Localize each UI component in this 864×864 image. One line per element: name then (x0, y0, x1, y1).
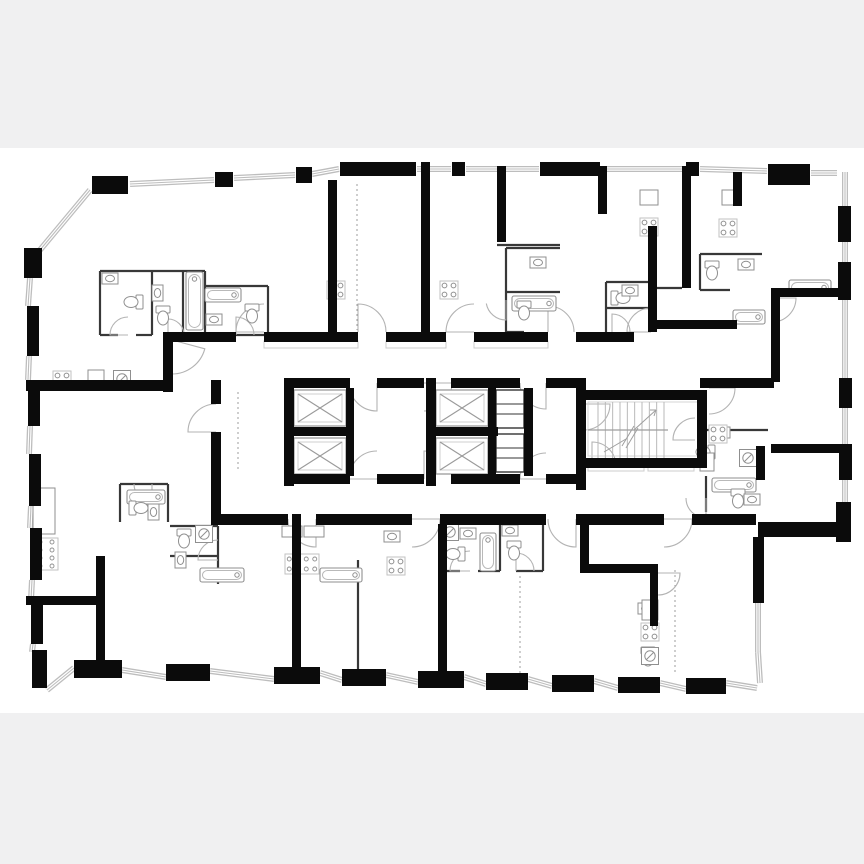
wall-segment (340, 162, 416, 176)
toilet-bowl (124, 297, 138, 308)
elevator-jamb (346, 396, 354, 401)
wall-segment (377, 474, 424, 484)
wall-segment (26, 380, 172, 391)
wall-segment (328, 180, 337, 332)
wall-segment (838, 206, 851, 242)
wall-segment (440, 514, 546, 525)
washer-icon (642, 648, 659, 665)
wall-segment (768, 164, 810, 185)
toilet-icon (517, 301, 531, 320)
sink-icon (206, 314, 222, 325)
toilet-bowl (707, 266, 718, 280)
wall-segment (486, 673, 528, 690)
sink-icon (148, 504, 159, 520)
wall-segment (576, 514, 664, 525)
wall-segment (421, 162, 430, 342)
wall-segment (211, 474, 221, 514)
bathtub-icon (733, 310, 765, 324)
stove-icon (440, 281, 458, 299)
sink-icon (744, 494, 760, 505)
wall-segment (686, 678, 726, 694)
wall-segment (598, 166, 607, 214)
wall-segment (758, 522, 850, 537)
stove-icon (285, 554, 319, 574)
wall-segment (540, 162, 600, 176)
toilet-bowl (179, 534, 190, 548)
wall-segment (692, 514, 756, 525)
wall-segment (580, 514, 589, 572)
sink-basin (622, 285, 638, 296)
elevator-jamb (426, 467, 436, 472)
toilet-icon (507, 541, 521, 560)
wall-segment (32, 650, 47, 688)
elevator-jamb (426, 419, 436, 424)
stove-icon (719, 219, 737, 237)
sink-basin (102, 273, 118, 284)
wall-segment (756, 446, 765, 480)
wall-segment (438, 524, 447, 674)
toilet-bowl (509, 546, 520, 560)
sink-icon (738, 259, 754, 270)
bathtub-icon (480, 533, 496, 571)
wall-segment (211, 432, 221, 474)
stove-icon (387, 557, 405, 575)
sink-basin (460, 528, 476, 539)
washer-icon (740, 450, 757, 467)
sink-basin (744, 494, 760, 505)
toilet-bowl (733, 494, 744, 508)
wall-segment (682, 166, 691, 288)
bathtub-icon (320, 568, 362, 582)
wall-segment (426, 427, 498, 436)
wall-segment (776, 288, 846, 297)
sink-icon (102, 273, 118, 284)
toilet-icon (705, 261, 719, 280)
service-shaft (496, 434, 524, 472)
wall-segment (166, 664, 210, 681)
elevator-jamb (346, 444, 354, 449)
wall-segment (29, 454, 41, 506)
wall-segment (24, 248, 42, 278)
wall-segment (211, 380, 221, 404)
sink-basin (738, 259, 754, 270)
wall-segment (172, 332, 236, 342)
washer-icon (196, 526, 213, 543)
sink-icon (152, 285, 163, 301)
elevator-jamb (426, 444, 436, 449)
elevator-jamb (346, 467, 354, 472)
wall-segment (377, 378, 424, 388)
wall-segment (342, 669, 386, 686)
sink-basin (384, 531, 400, 542)
wall-segment (576, 332, 634, 342)
sink-basin (148, 504, 159, 520)
wall-segment (292, 514, 301, 670)
wall-segment (386, 332, 446, 342)
sink-icon (502, 525, 518, 536)
wall-segment (451, 378, 520, 388)
toilet-icon (446, 547, 465, 561)
toilet-icon (245, 304, 259, 323)
wall-segment (733, 172, 742, 206)
toilet-icon (129, 501, 148, 515)
wall-segment (697, 390, 707, 468)
wall-segment (700, 378, 774, 388)
wall-segment (211, 514, 288, 525)
wall-segment (284, 474, 350, 484)
wall-segment (451, 474, 520, 484)
wall-segment (215, 172, 233, 187)
sink-icon (530, 257, 546, 268)
wall-segment (316, 514, 412, 525)
sink-icon (622, 285, 638, 296)
elevator-jamb (426, 396, 436, 401)
wall-segment (497, 166, 506, 242)
wall-segment (524, 388, 533, 476)
wall-segment (771, 288, 780, 382)
floor-plan-viewer (0, 0, 864, 864)
toilet-bowl (519, 306, 530, 320)
wall-segment (30, 528, 42, 580)
sink-basin (530, 257, 546, 268)
wall-segment (576, 458, 707, 468)
sink-basin (206, 314, 222, 325)
wall-segment (651, 320, 737, 329)
sink-icon (384, 531, 400, 542)
wall-segment (92, 176, 128, 194)
wall-segment (31, 600, 43, 644)
wall-segment (648, 226, 657, 332)
wall-segment (839, 378, 852, 408)
sink-basin (502, 525, 518, 536)
counter-box (304, 526, 324, 537)
sink-icon (460, 528, 476, 539)
counter-box (640, 190, 658, 205)
wall-segment (26, 596, 100, 605)
service-shaft (496, 390, 524, 428)
toilet-bowl (134, 503, 148, 514)
floor-plan-svg (0, 0, 864, 864)
toilet-bowl (247, 309, 258, 323)
toilet-icon (156, 306, 170, 325)
toilet-icon (731, 489, 745, 508)
wall-segment (650, 564, 658, 626)
wall-segment (284, 427, 354, 436)
toilet-icon (177, 529, 191, 548)
wall-segment (264, 332, 358, 342)
bathtub-icon (186, 272, 203, 330)
wall-segment (27, 306, 39, 356)
wall-segment (96, 556, 105, 664)
wall-segment (474, 332, 548, 342)
stove-icon (709, 425, 727, 443)
wall-segment (296, 167, 312, 183)
wall-segment (618, 677, 660, 693)
wall-segment (580, 564, 658, 573)
bathtub-icon (200, 568, 244, 582)
toilet-icon (124, 295, 143, 309)
sink-icon (175, 552, 186, 568)
wall-segment (452, 162, 465, 176)
bathtub-icon (205, 288, 241, 302)
wall-segment (552, 675, 594, 692)
wall-segment (576, 390, 707, 400)
wall-segment (771, 444, 841, 453)
elevator-jamb (346, 419, 354, 424)
sink-basin (175, 552, 186, 568)
sink-basin (152, 285, 163, 301)
toilet-bowl (446, 549, 460, 560)
wall-segment (284, 378, 350, 388)
wall-segment (753, 537, 764, 603)
toilet-bowl (158, 311, 169, 325)
